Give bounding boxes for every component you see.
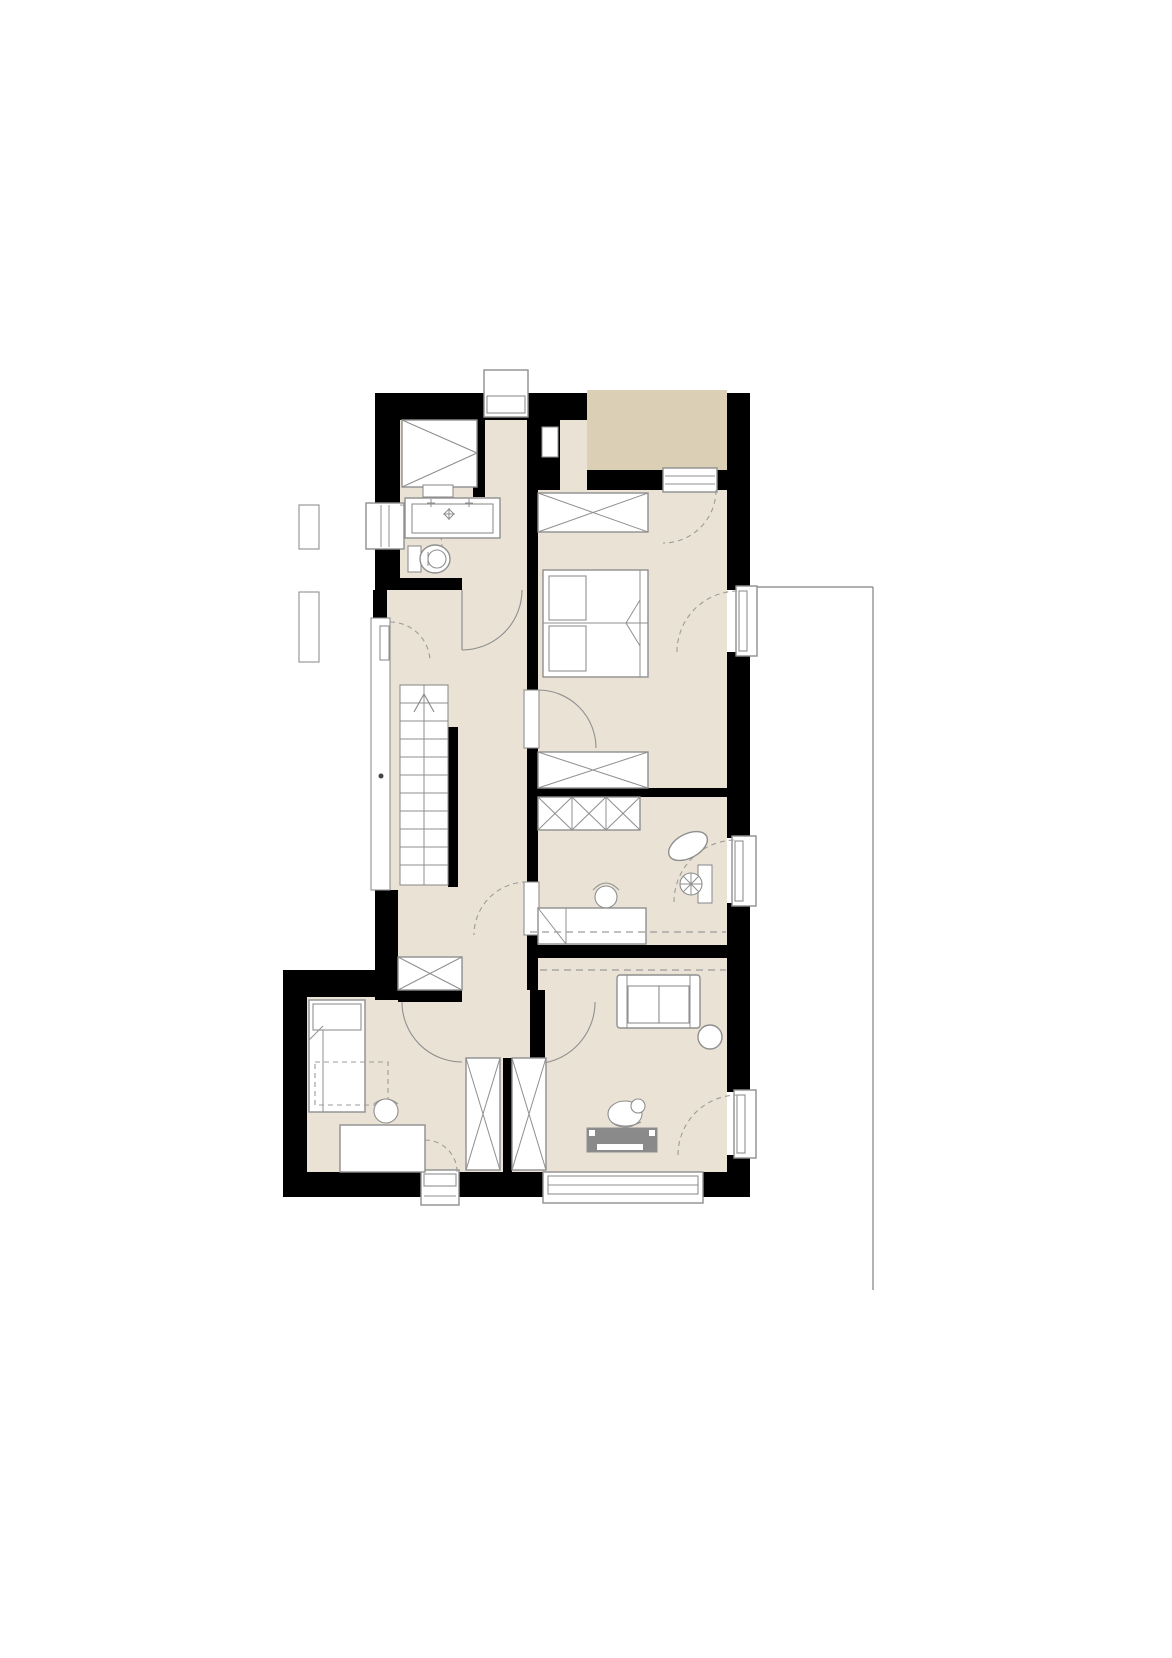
wall-left-bottom bbox=[283, 970, 307, 1197]
wall-right-3 bbox=[727, 903, 750, 1092]
sofa bbox=[617, 975, 700, 1028]
wall-bottom-1 bbox=[283, 1172, 423, 1197]
washbasin-vanity bbox=[405, 498, 500, 538]
staircase-up bbox=[400, 685, 448, 885]
tall-wardrobe-right bbox=[512, 1058, 546, 1170]
wall-left-upper bbox=[375, 393, 400, 505]
wall-stair-side bbox=[448, 727, 458, 887]
balcony bbox=[587, 390, 727, 470]
wall-hall-kids bbox=[398, 990, 462, 1002]
shower bbox=[402, 420, 477, 497]
wall-niche bbox=[542, 427, 558, 457]
wall-top bbox=[375, 393, 587, 420]
toilet bbox=[408, 545, 450, 573]
wall-hall-bedroom-1 bbox=[527, 490, 538, 690]
single-bed bbox=[309, 1000, 365, 1112]
bottom-large-window bbox=[543, 1172, 703, 1203]
wall-left-stub bbox=[373, 590, 387, 620]
wall-hall-study bbox=[527, 935, 538, 990]
wall-bedroom-study bbox=[527, 788, 727, 797]
wall-below-balcony-right bbox=[717, 470, 727, 490]
chimney bbox=[484, 370, 528, 417]
kids-chair bbox=[374, 1099, 398, 1123]
wall-stub-living bbox=[530, 990, 545, 1058]
floor-bedroom-nook bbox=[560, 420, 587, 490]
round-side-table bbox=[698, 1025, 722, 1049]
double-bed bbox=[543, 570, 648, 677]
wall-kids-divider bbox=[503, 1058, 512, 1172]
desk-chair bbox=[595, 886, 617, 908]
window-sill-box-2 bbox=[299, 592, 319, 662]
wall-right-2 bbox=[727, 652, 750, 838]
terrace-outline bbox=[750, 587, 873, 1290]
wall-left-lower bbox=[375, 890, 398, 1000]
wall-right-1 bbox=[727, 393, 750, 590]
wall-left-mid bbox=[375, 547, 400, 578]
floor-plan-canvas bbox=[0, 0, 1172, 1658]
wall-bottom-3 bbox=[703, 1172, 750, 1197]
wall-bottom-2 bbox=[457, 1172, 543, 1197]
floor-kids-doorway bbox=[462, 990, 533, 1004]
wall-study-living bbox=[527, 945, 727, 958]
sideboard bbox=[538, 797, 640, 830]
wall-bathroom-bottom bbox=[375, 578, 462, 590]
pillow bbox=[549, 626, 586, 671]
window-sill-box-1 bbox=[299, 505, 319, 549]
wall-below-balcony-left bbox=[587, 470, 663, 490]
pillow bbox=[549, 576, 586, 620]
wall-hall-bedroom-2 bbox=[527, 748, 538, 882]
floor-plan-drawing bbox=[0, 0, 1172, 1658]
tv-lowboard bbox=[587, 1128, 657, 1152]
sliding-wardrobe bbox=[538, 493, 648, 532]
hall-wardrobe bbox=[398, 957, 462, 990]
pillow bbox=[313, 1004, 361, 1030]
bedroom-dresser bbox=[538, 752, 648, 788]
tall-wardrobe-left bbox=[466, 1058, 500, 1170]
